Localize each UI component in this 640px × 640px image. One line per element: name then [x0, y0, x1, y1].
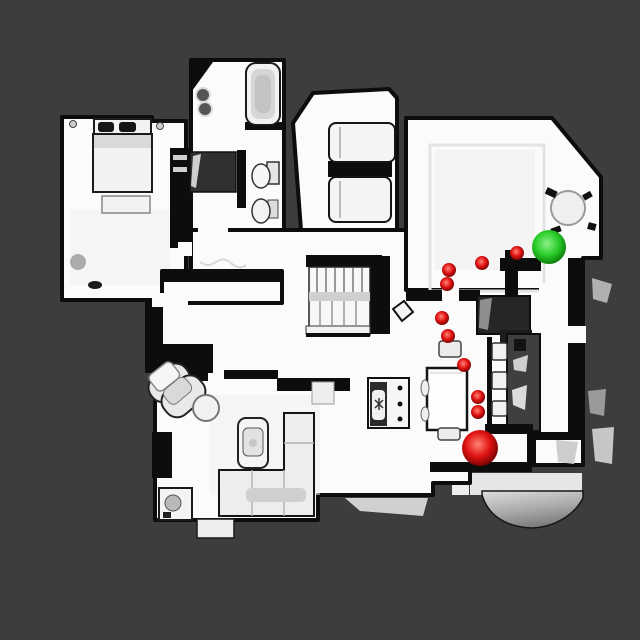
floor-object	[88, 281, 102, 289]
bed-blanket-fold	[94, 135, 151, 148]
wall-segment	[224, 370, 278, 379]
stair-base-wall	[306, 333, 370, 337]
shelf-item	[157, 123, 164, 130]
dining-chair	[421, 407, 429, 421]
stairwell-wall	[370, 256, 390, 334]
stair-banister-rail	[162, 271, 282, 282]
dining-chair	[439, 341, 461, 357]
stair-landing	[309, 292, 370, 301]
bed-pillow	[98, 122, 114, 132]
cabinet-door	[492, 401, 507, 416]
waypoint-sphere-3	[442, 263, 456, 277]
stair-base	[306, 326, 370, 334]
bed-bench	[102, 196, 150, 213]
cabinet-door	[492, 372, 507, 389]
piano-knob	[398, 386, 403, 391]
3d-scan-viewport[interactable]	[0, 0, 640, 640]
ottoman	[193, 395, 219, 421]
side-door-opening	[566, 326, 586, 343]
toilet	[252, 164, 270, 188]
exterior-debris	[588, 389, 606, 416]
floor-pillow	[70, 254, 86, 270]
round-table	[551, 191, 585, 225]
wall-segment	[152, 432, 172, 478]
piano-knob	[398, 402, 403, 407]
waypoint-sphere-1	[510, 246, 524, 260]
bathtub-water	[255, 75, 271, 113]
fireplace-grate	[163, 512, 171, 518]
island-sink	[514, 339, 526, 351]
kitchen-east-wall	[568, 258, 584, 438]
closet-shelf	[173, 167, 187, 172]
waypoint-sphere-2	[475, 256, 489, 270]
dining-chair	[438, 428, 460, 440]
den	[328, 123, 395, 222]
kitchen-hall-opening	[539, 283, 568, 297]
mudroom-wall	[527, 437, 536, 465]
island-base-wall	[485, 424, 533, 434]
bathroom-door-opening	[198, 223, 228, 236]
den-divider	[328, 161, 392, 177]
dining-table	[427, 368, 467, 430]
floor-shade-patch	[70, 210, 170, 285]
den-sofa	[329, 177, 391, 222]
large-red-sphere	[462, 430, 498, 466]
waypoint-sphere-8	[471, 390, 485, 404]
stairwell-void	[145, 302, 163, 346]
bedroom-door-opening	[178, 242, 192, 256]
chimney-bump	[197, 519, 234, 538]
piano-knob	[398, 417, 403, 422]
shelf-item	[70, 121, 77, 128]
den-sofa	[329, 123, 395, 162]
cabinet-door	[492, 343, 507, 360]
waypoint-sphere-6	[441, 329, 455, 343]
waypoint-sphere-4	[440, 277, 454, 291]
kitchen-wall	[500, 258, 541, 271]
exterior-debris	[592, 427, 614, 464]
wall-segment	[237, 150, 246, 208]
sink	[198, 102, 212, 116]
closet-shelf	[173, 155, 187, 160]
table-object	[249, 439, 257, 447]
green-sphere	[532, 230, 566, 264]
bidet	[252, 199, 270, 223]
bed-pillow	[119, 122, 136, 132]
waypoint-sphere-5	[435, 311, 449, 325]
sink	[196, 88, 210, 102]
closet-wall	[170, 148, 190, 248]
fireplace-basin	[165, 495, 181, 511]
hall-opening	[152, 293, 188, 307]
dining-chair	[421, 380, 429, 396]
waypoint-sphere-9	[471, 405, 485, 419]
side-console	[312, 382, 334, 404]
waypoint-sphere-7	[457, 358, 471, 372]
couch-seat-shadow	[246, 488, 306, 502]
wall-segment	[406, 290, 442, 301]
floorplan-canvas[interactable]	[0, 0, 640, 640]
